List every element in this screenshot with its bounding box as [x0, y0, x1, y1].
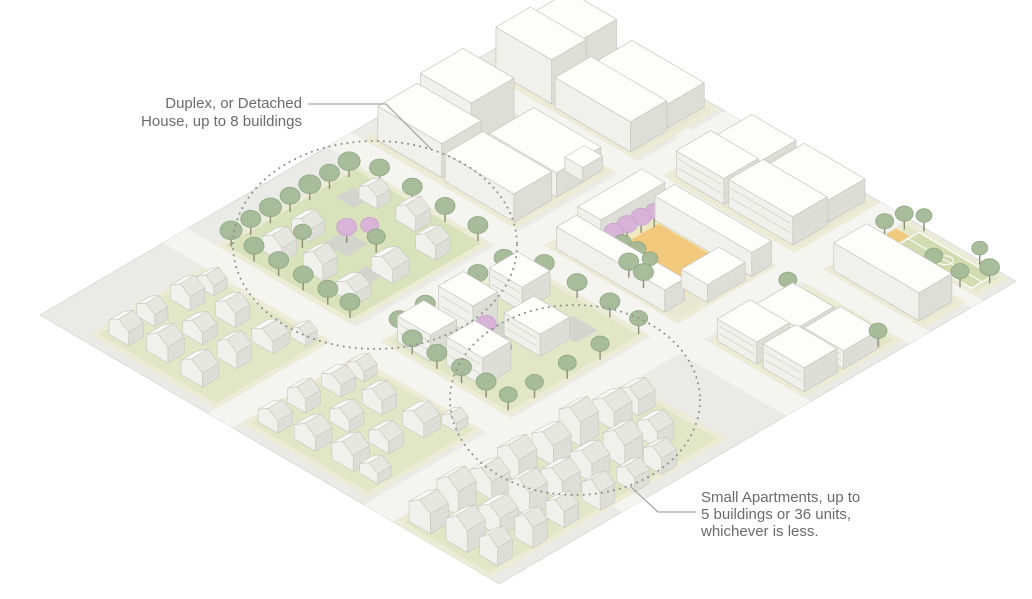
duplex-annotation-line-2: House, up to 8 buildings — [141, 113, 302, 130]
small-apartments-annotation-line-2: 5 buildings or 36 units, — [701, 506, 851, 523]
city-blocks-illustration — [40, 0, 1016, 584]
annotation-small-apartments: Small Apartments, up to 5 buildings or 3… — [700, 489, 860, 540]
duplex-annotation-line-1: Duplex, or Detached — [165, 95, 302, 112]
site-plan-illustration: Duplex, or Detached House, up to 8 build… — [0, 0, 1032, 599]
small-apartments-annotation-line-1: Small Apartments, up to — [701, 489, 860, 506]
small-apartments-annotation-line-3: whichever is less. — [700, 523, 819, 540]
annotation-duplex: Duplex, or Detached House, up to 8 build… — [141, 95, 302, 130]
isometric-neighborhood-svg: Duplex, or Detached House, up to 8 build… — [0, 0, 1032, 599]
